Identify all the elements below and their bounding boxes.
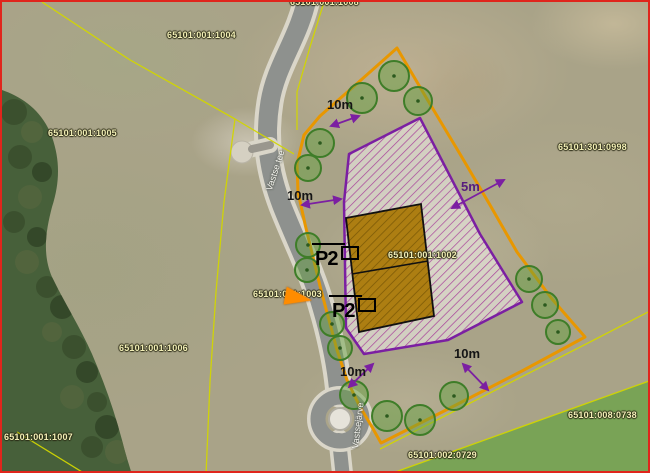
map-feature-layer: [2, 2, 650, 473]
tree-center-dot: [352, 393, 356, 397]
road-stub-surface: [252, 145, 270, 149]
tree-center-dot: [385, 414, 389, 418]
tree-center-dot: [416, 99, 420, 103]
tree-center-dot: [306, 166, 310, 170]
tree-center-dot: [360, 96, 364, 100]
tree-center-dot: [543, 303, 547, 307]
tree-center-dot: [330, 322, 334, 326]
tree-center-dot: [556, 330, 560, 334]
tree-center-dot: [527, 277, 531, 281]
tree-center-dot: [318, 141, 322, 145]
tree-center-dot: [418, 418, 422, 422]
tree-center-dot: [392, 74, 396, 78]
tree-center-dot: [338, 346, 342, 350]
tree-center-dot: [306, 243, 310, 247]
tree-center-dot: [452, 394, 456, 398]
roundabout-island: [329, 408, 351, 430]
tree-center-dot: [305, 268, 309, 272]
map-viewport[interactable]: 65101:001:100865101:001:100465101:001:10…: [0, 0, 650, 473]
